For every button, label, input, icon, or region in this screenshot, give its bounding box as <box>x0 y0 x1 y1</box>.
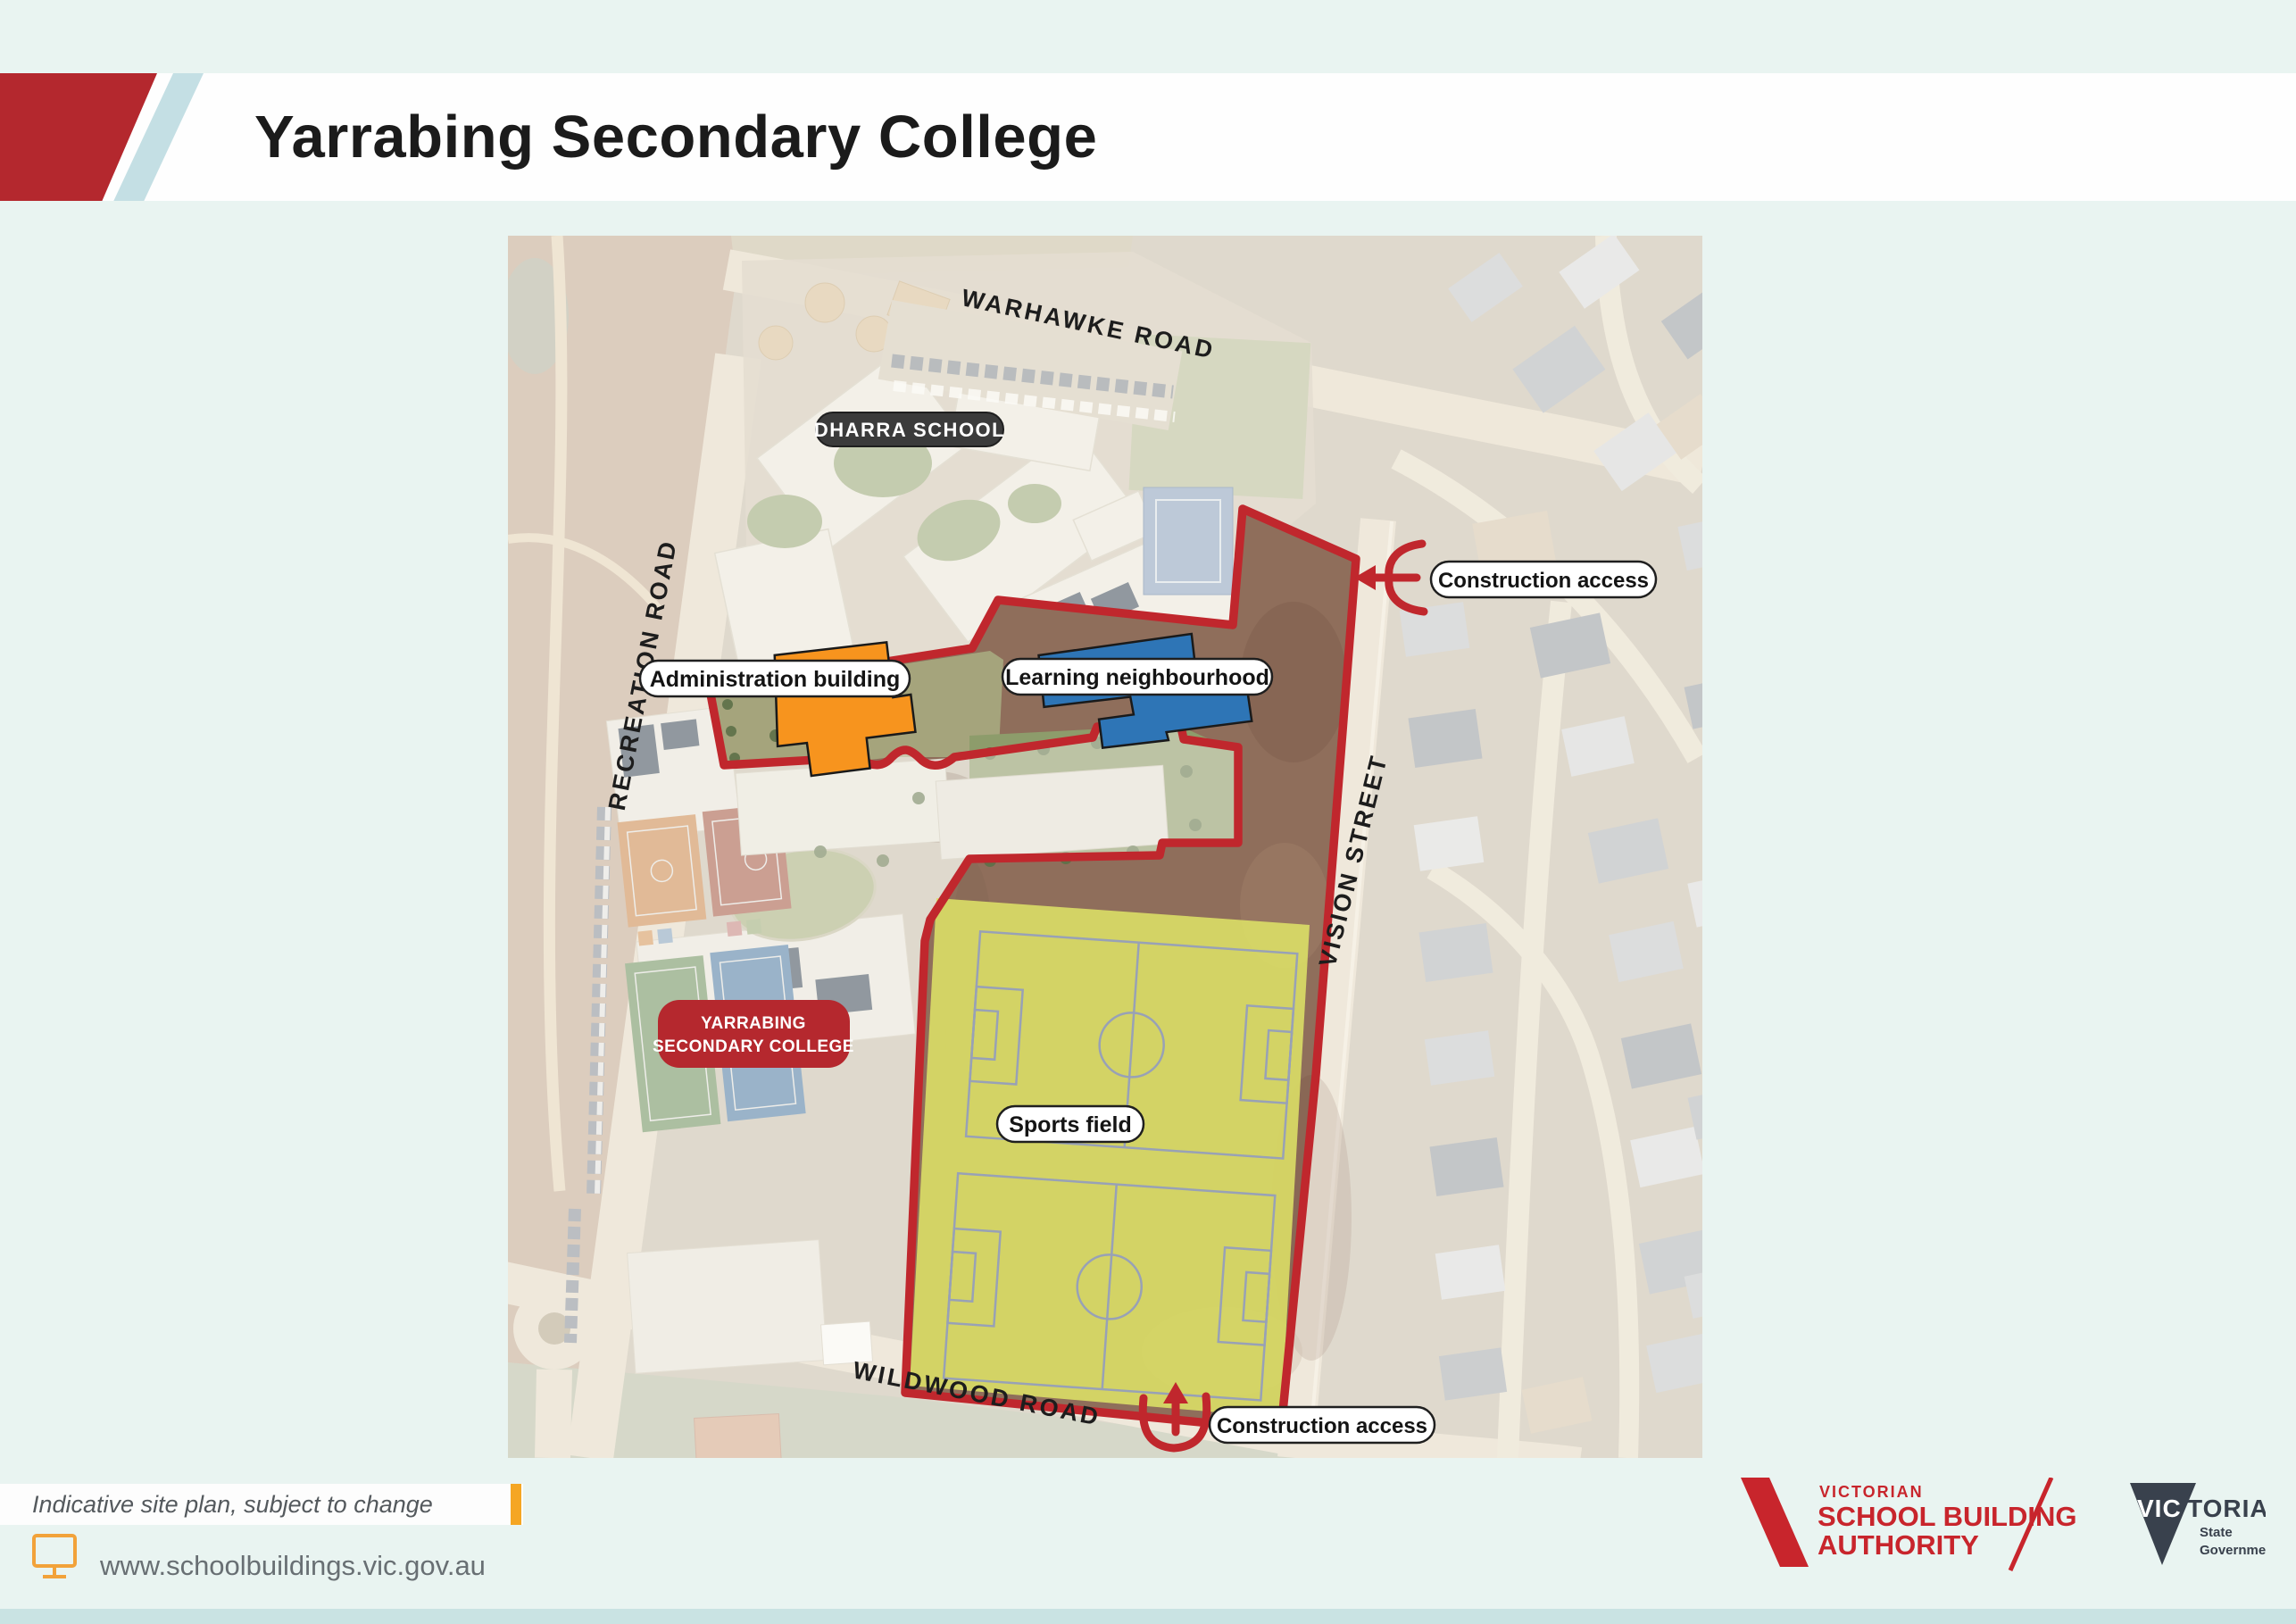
disclaimer-strip: Indicative site plan, subject to change <box>0 1484 523 1525</box>
college-label-line2: SECONDARY COLLEGE <box>653 1037 854 1056</box>
victoria-logo-word-dark: TORIA <box>2187 1495 2266 1522</box>
site-plan-map: WARHAWKE ROAD RECREATION ROAD VISION STR… <box>508 236 1702 1458</box>
college-badge <box>658 1000 850 1068</box>
victoria-logo-sub1: State <box>2200 1525 2233 1540</box>
college-label-line1: YARRABING <box>701 1014 806 1033</box>
website-link[interactable]: www.schoolbuildings.vic.gov.au <box>100 1550 486 1582</box>
header-banner: Yarrabing Secondary College <box>0 73 2296 201</box>
vsba-logo-line3: AUTHORITY <box>1818 1529 1979 1561</box>
victoria-state-government-logo: VIC TORIA State Government <box>2114 1478 2266 1574</box>
vsba-logo-line2: SCHOOL BUILDING <box>1818 1501 2077 1532</box>
victoria-logo-sub2: Government <box>2200 1543 2266 1558</box>
monitor-icon <box>30 1532 80 1582</box>
disclaimer-note: Indicative site plan, subject to change <box>32 1484 433 1525</box>
construction-access-north-label: Construction access <box>1438 569 1649 593</box>
vsba-logo-mark <box>1741 1478 1809 1567</box>
learning-neighbourhood-label: Learning neighbourhood <box>1005 665 1269 690</box>
sports-field-shape <box>910 898 1310 1418</box>
construction-access-south-label: Construction access <box>1217 1414 1427 1438</box>
vsba-logo-line1: VICTORIAN <box>1819 1483 1924 1501</box>
orange-accent-bar <box>511 1484 521 1525</box>
dharra-school-label: DHARRA SCHOOL <box>814 419 1005 441</box>
page-title: Yarrabing Secondary College <box>254 73 1097 201</box>
sports-field-label: Sports field <box>1009 1112 1132 1137</box>
site-plan-map-container: WARHAWKE ROAD RECREATION ROAD VISION STR… <box>508 236 1702 1458</box>
page: Yarrabing Secondary College <box>0 0 2296 1624</box>
administration-building-label: Administration building <box>650 667 901 692</box>
bottom-accent-strip <box>0 1609 2296 1624</box>
victoria-logo-word-white: VIC <box>2137 1495 2182 1522</box>
vsba-logo: VICTORIAN SCHOOL BUILDING AUTHORITY <box>1741 1478 2125 1574</box>
